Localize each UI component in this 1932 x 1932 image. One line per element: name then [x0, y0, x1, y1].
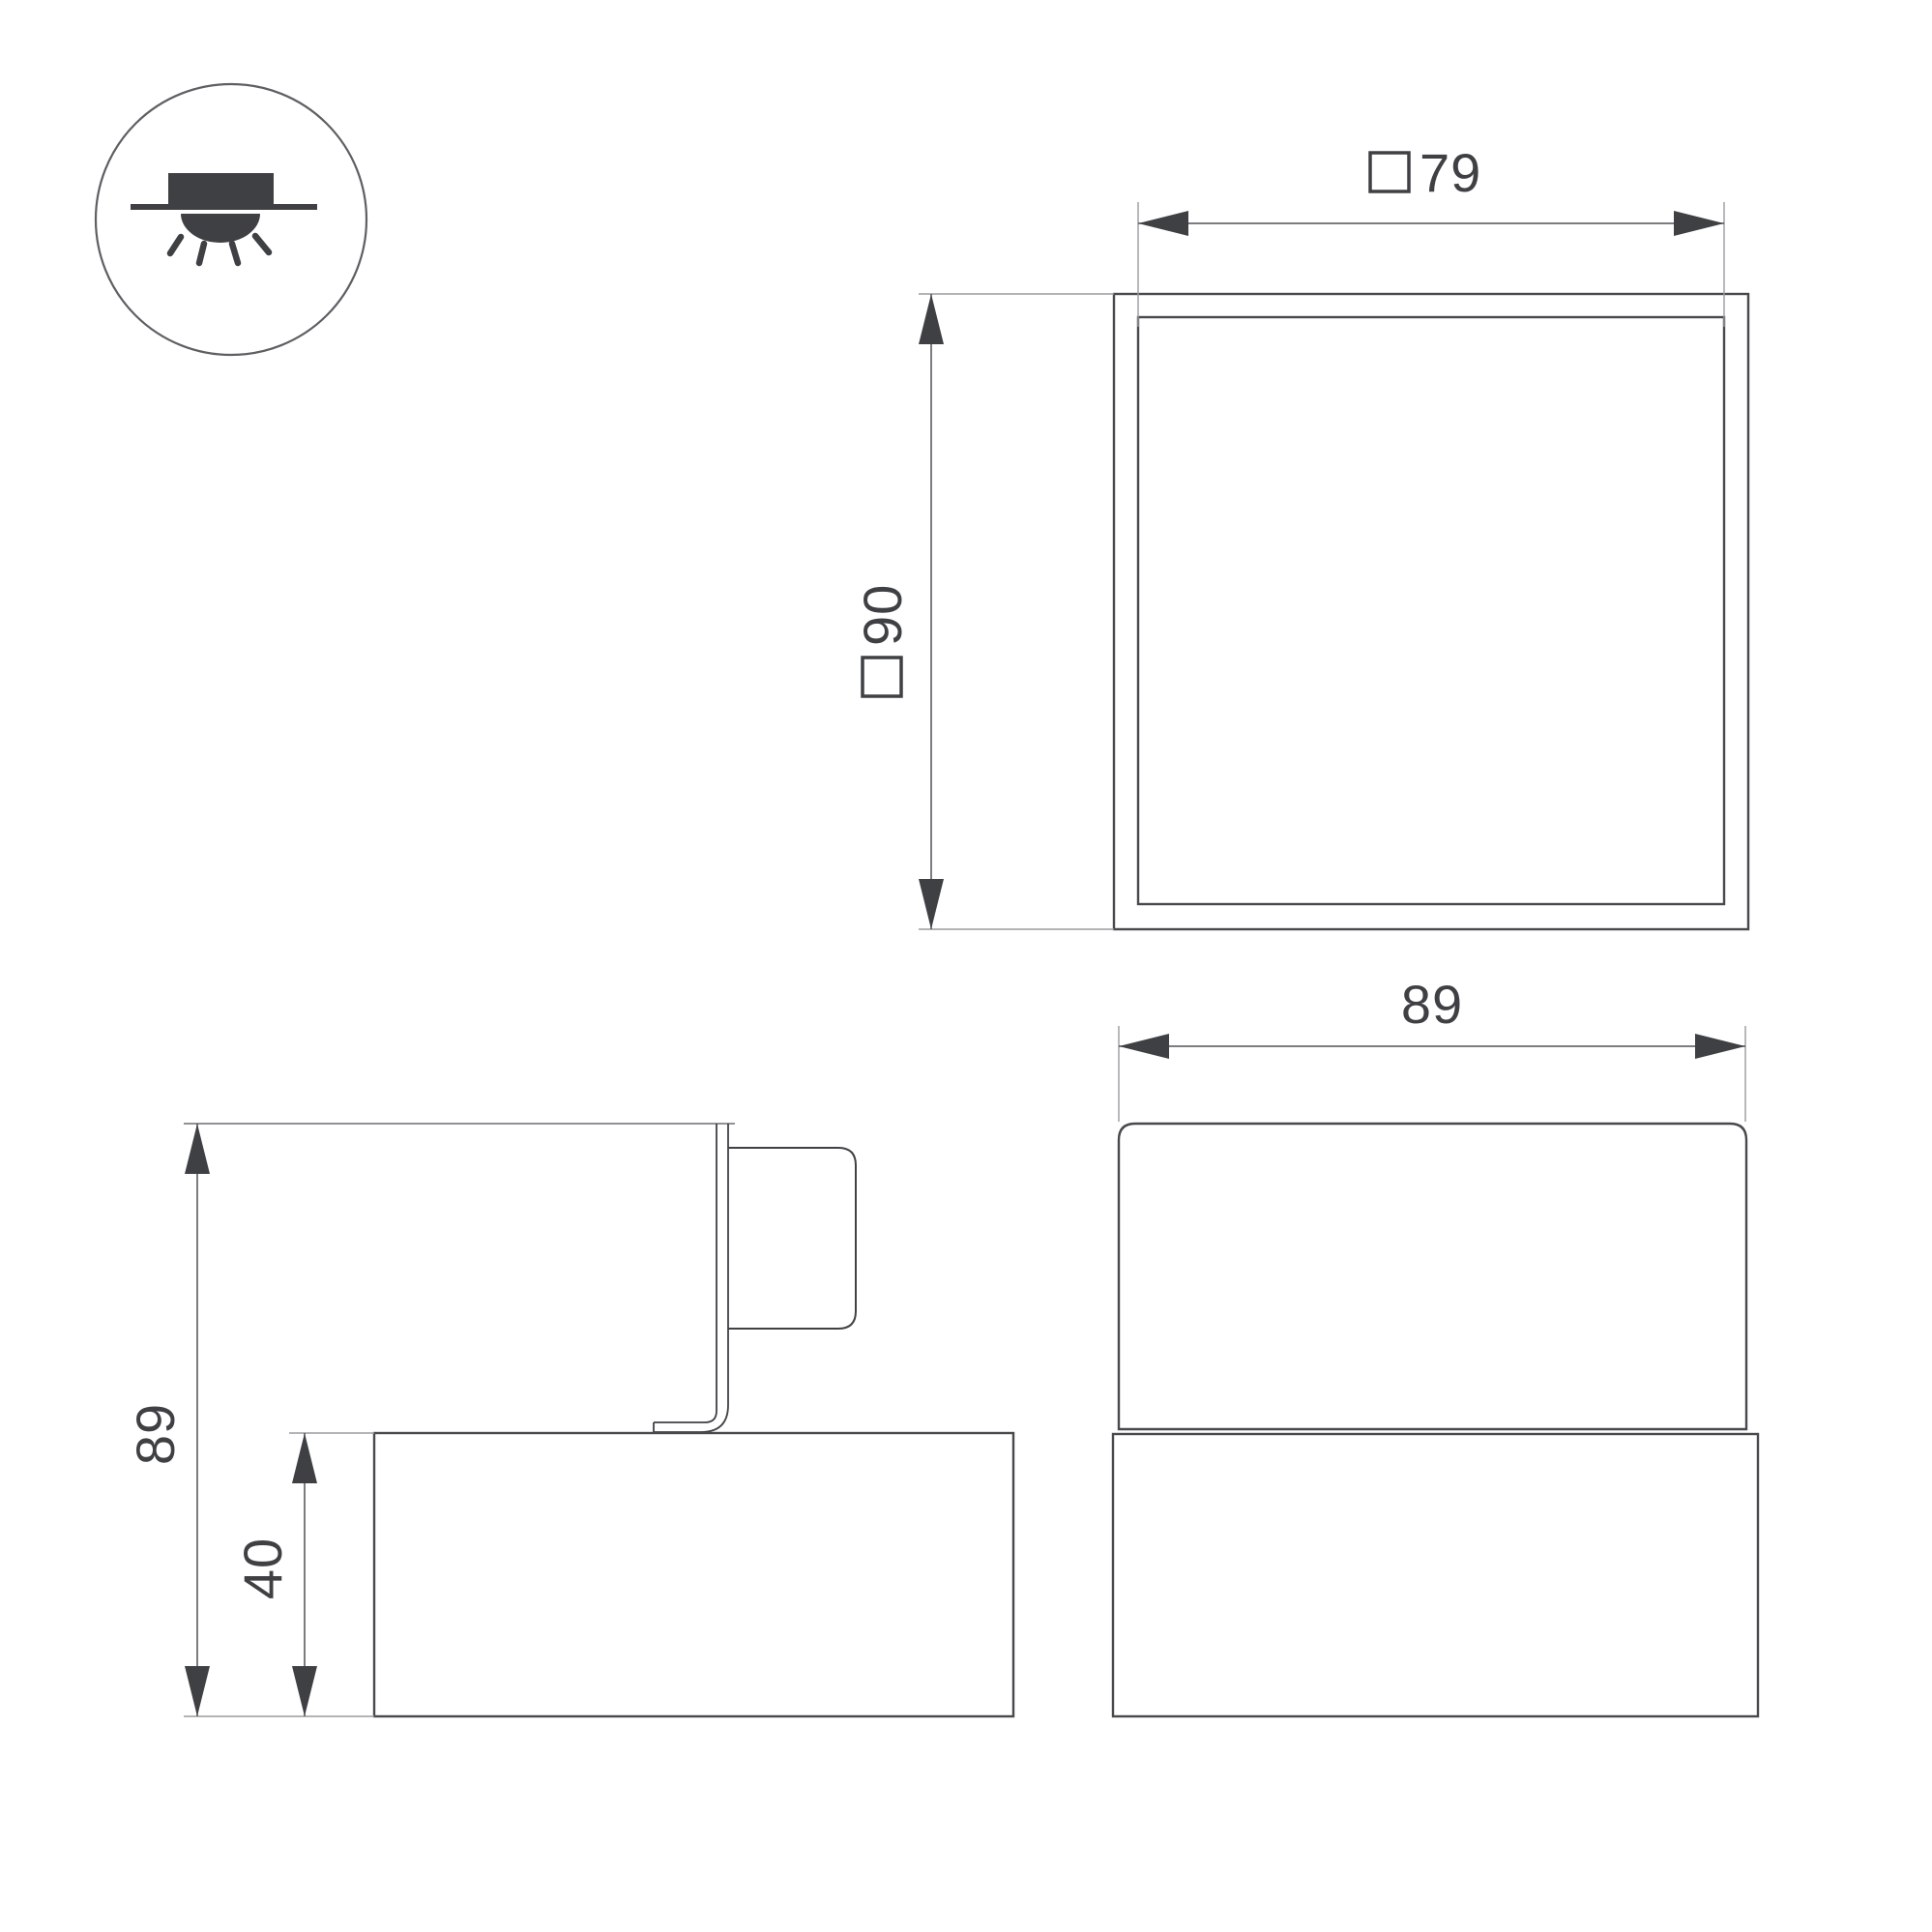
- front-inner-square: [1138, 317, 1724, 904]
- arrowhead-down-icon: [185, 1666, 210, 1716]
- dimension-front-height: 90: [852, 294, 1114, 929]
- front-outer-square: [1114, 294, 1748, 929]
- arrowhead-up-icon: [292, 1433, 317, 1483]
- square-symbol: [1370, 153, 1409, 191]
- light-dome-glyph: [181, 214, 260, 243]
- ceiling-line-glyph: [131, 204, 317, 210]
- drawing-canvas: 79 90: [0, 0, 1932, 1932]
- dimension-label-front-width: 79: [1420, 142, 1481, 203]
- square-symbol: [863, 658, 901, 696]
- rear-view: 89: [1113, 974, 1758, 1716]
- rotated-label-group: 89: [125, 1403, 186, 1465]
- arrowhead-down-icon: [919, 879, 944, 929]
- dimension-rear-width: 89: [1119, 974, 1745, 1122]
- rotated-label-group: 90: [852, 584, 913, 696]
- dimension-side-total-height: 89: [125, 1124, 374, 1716]
- front-view: 79 90: [852, 142, 1748, 929]
- arrowhead-right-icon: [1695, 1034, 1745, 1059]
- dimension-side-base-height: 40: [232, 1433, 374, 1716]
- connector-block: [728, 1148, 856, 1329]
- arrowhead-up-icon: [185, 1124, 210, 1174]
- arrowhead-right-icon: [1674, 211, 1724, 236]
- arrowhead-left-icon: [1119, 1034, 1169, 1059]
- rotated-label-group: 40: [232, 1537, 293, 1599]
- dimension-label-side-base-height: 40: [232, 1537, 293, 1599]
- arrowhead-down-icon: [292, 1666, 317, 1716]
- arrowhead-up-icon: [919, 294, 944, 344]
- fixture-body-glyph: [168, 173, 274, 205]
- dimension-label-front-height: 90: [852, 584, 913, 646]
- mount-type-icon: [96, 84, 366, 355]
- rear-head-outline: [1119, 1124, 1746, 1429]
- technical-drawing-page: 79 90: [0, 0, 1932, 1932]
- side-view: 89 40: [125, 1124, 1013, 1716]
- arrowhead-left-icon: [1138, 211, 1188, 236]
- mounting-bracket: [654, 1124, 728, 1432]
- dimension-front-width: 79: [1138, 142, 1724, 327]
- dimension-label-rear-width: 89: [1401, 974, 1463, 1035]
- rear-base-box: [1113, 1434, 1758, 1716]
- dimension-label-side-total-height: 89: [125, 1403, 186, 1465]
- side-base-box: [374, 1433, 1013, 1716]
